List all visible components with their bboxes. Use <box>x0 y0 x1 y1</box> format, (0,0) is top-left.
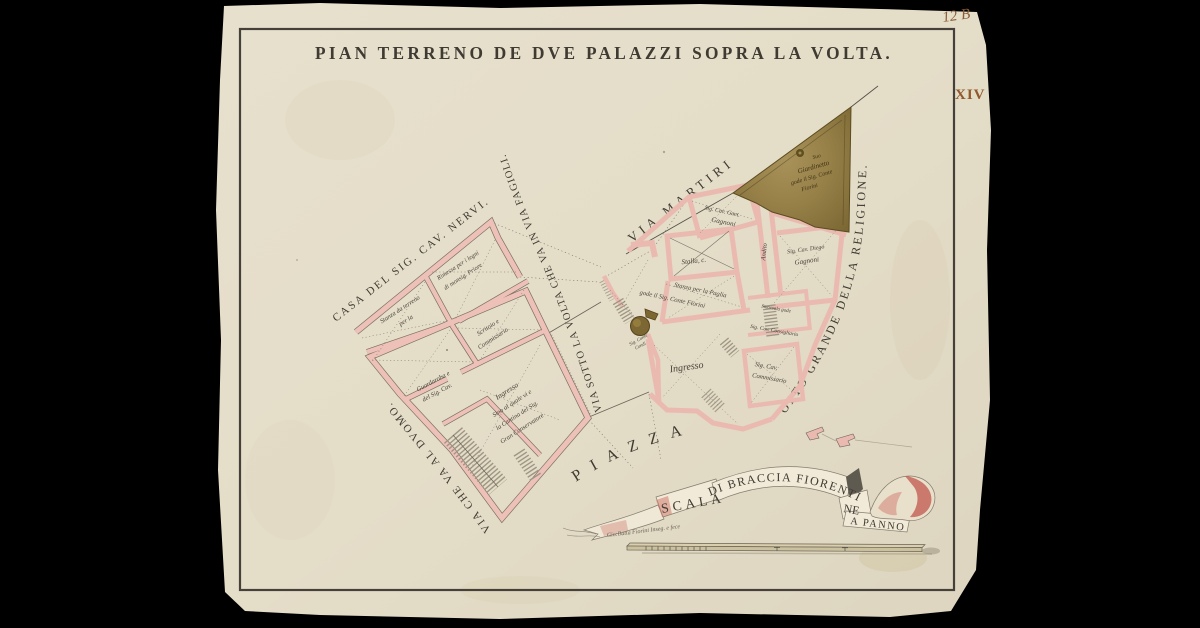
svg-text:PIAN TERRENO DE DVE PALAZZI SO: PIAN TERRENO DE DVE PALAZZI SOPRA LA VOL… <box>315 43 893 63</box>
svg-text:XIV: XIV <box>955 87 986 103</box>
